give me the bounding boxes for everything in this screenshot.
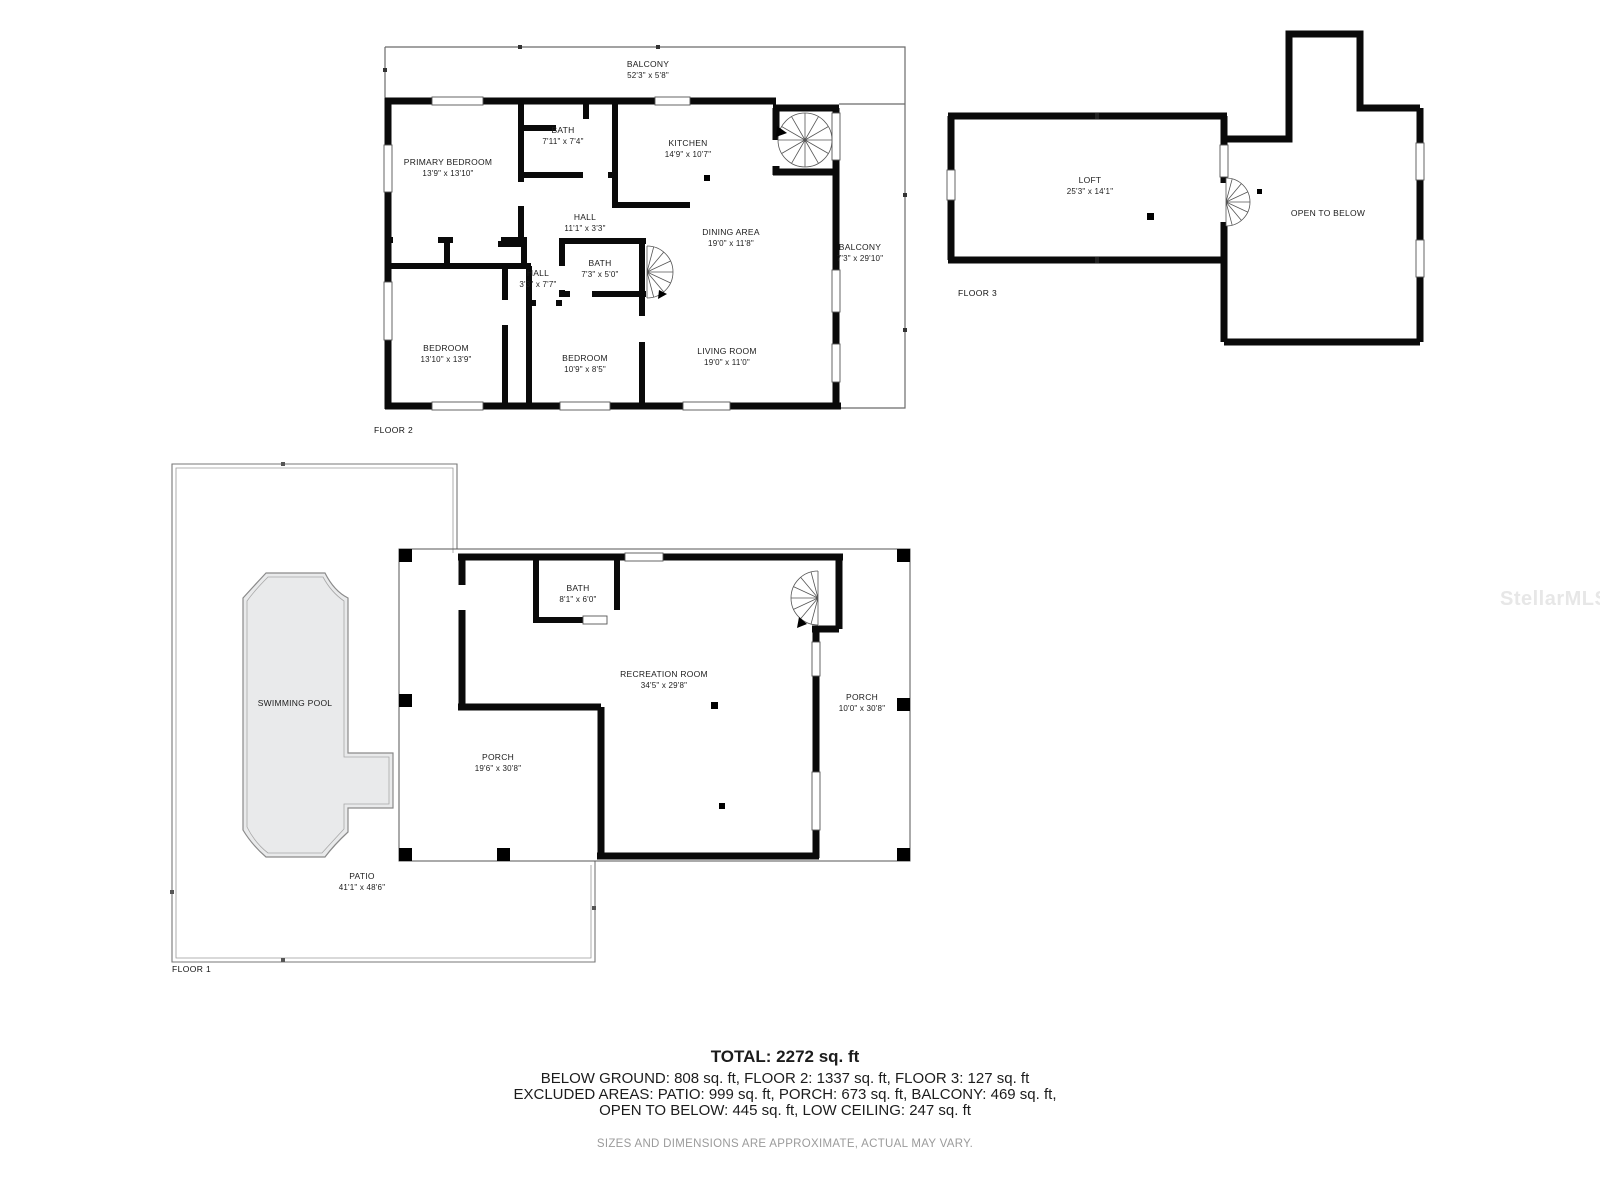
stair-fan-icon [647, 246, 673, 298]
room-label-bath-mid: BATH7'3" x 5'0" [581, 258, 618, 280]
stair-fan-icon [1226, 178, 1250, 226]
room-label-living-room: LIVING ROOM19'0" x 11'0" [697, 346, 756, 368]
swimming-pool-shape [243, 573, 393, 857]
spiral-stair-icon [778, 113, 832, 167]
room-label-hall-upper: HALL11'1" x 3'3" [564, 212, 605, 234]
room-label-bedroom-mid: BEDROOM10'9" x 8'5" [562, 353, 608, 375]
room-label-recreation-room: RECREATION ROOM34'5" x 29'8" [620, 669, 708, 691]
total-area-text: TOTAL: 2272 sq. ft [0, 1047, 1570, 1067]
room-label-swimming-pool: SWIMMING POOL [258, 698, 333, 709]
floor-areas-text: BELOW GROUND: 808 sq. ft, FLOOR 2: 1337 … [0, 1070, 1570, 1087]
stellar-mls-watermark: StellarMLS [1500, 588, 1600, 611]
room-label-kitchen: KITCHEN14'9" x 10'7" [665, 138, 711, 160]
room-label-primary-bedroom: PRIMARY BEDROOM13'9" x 13'10" [404, 157, 492, 179]
disclaimer-text: SIZES AND DIMENSIONS ARE APPROXIMATE, AC… [0, 1138, 1570, 1150]
room-label-porch-left: PORCH19'6" x 30'8" [475, 752, 521, 774]
room-label-dining-area: DINING AREA19'0" x 11'8" [702, 227, 760, 249]
floorplan-linework [0, 0, 1600, 1200]
floorplan-page: BALCONY52'3" x 5'8" PRIMARY BEDROOM13'9"… [0, 0, 1600, 1200]
room-label-balcony-right: BALCONY7'3" x 29'10" [837, 242, 883, 264]
room-label-open-to-below: OPEN TO BELOW [1291, 208, 1365, 219]
room-label-bath-floor1: BATH8'1" x 6'0" [559, 583, 596, 605]
stair-fan-icon [791, 571, 818, 625]
floor3-label: FLOOR 3 [958, 288, 997, 298]
floor2-label: FLOOR 2 [374, 425, 413, 435]
room-label-patio: PATIO41'1" x 48'6" [339, 871, 385, 893]
floor1-plan [170, 462, 910, 962]
room-label-loft: LOFT25'3" x 14'1" [1067, 175, 1113, 197]
room-label-hall-mid: HALL3'3" x 7'7" [519, 268, 556, 290]
room-label-bath-upper: BATH7'11" x 7'4" [542, 125, 583, 147]
excluded-areas-text-2: OPEN TO BELOW: 445 sq. ft, LOW CEILING: … [0, 1102, 1570, 1119]
room-label-bedroom-left: BEDROOM13'10" x 13'9" [420, 343, 471, 365]
floor1-label: FLOOR 1 [172, 964, 211, 974]
room-label-porch-right: PORCH10'0" x 30'8" [839, 692, 885, 714]
excluded-areas-text: EXCLUDED AREAS: PATIO: 999 sq. ft, PORCH… [0, 1086, 1570, 1103]
room-label-balcony-top: BALCONY52'3" x 5'8" [627, 59, 669, 81]
floor3-plan [947, 34, 1424, 342]
